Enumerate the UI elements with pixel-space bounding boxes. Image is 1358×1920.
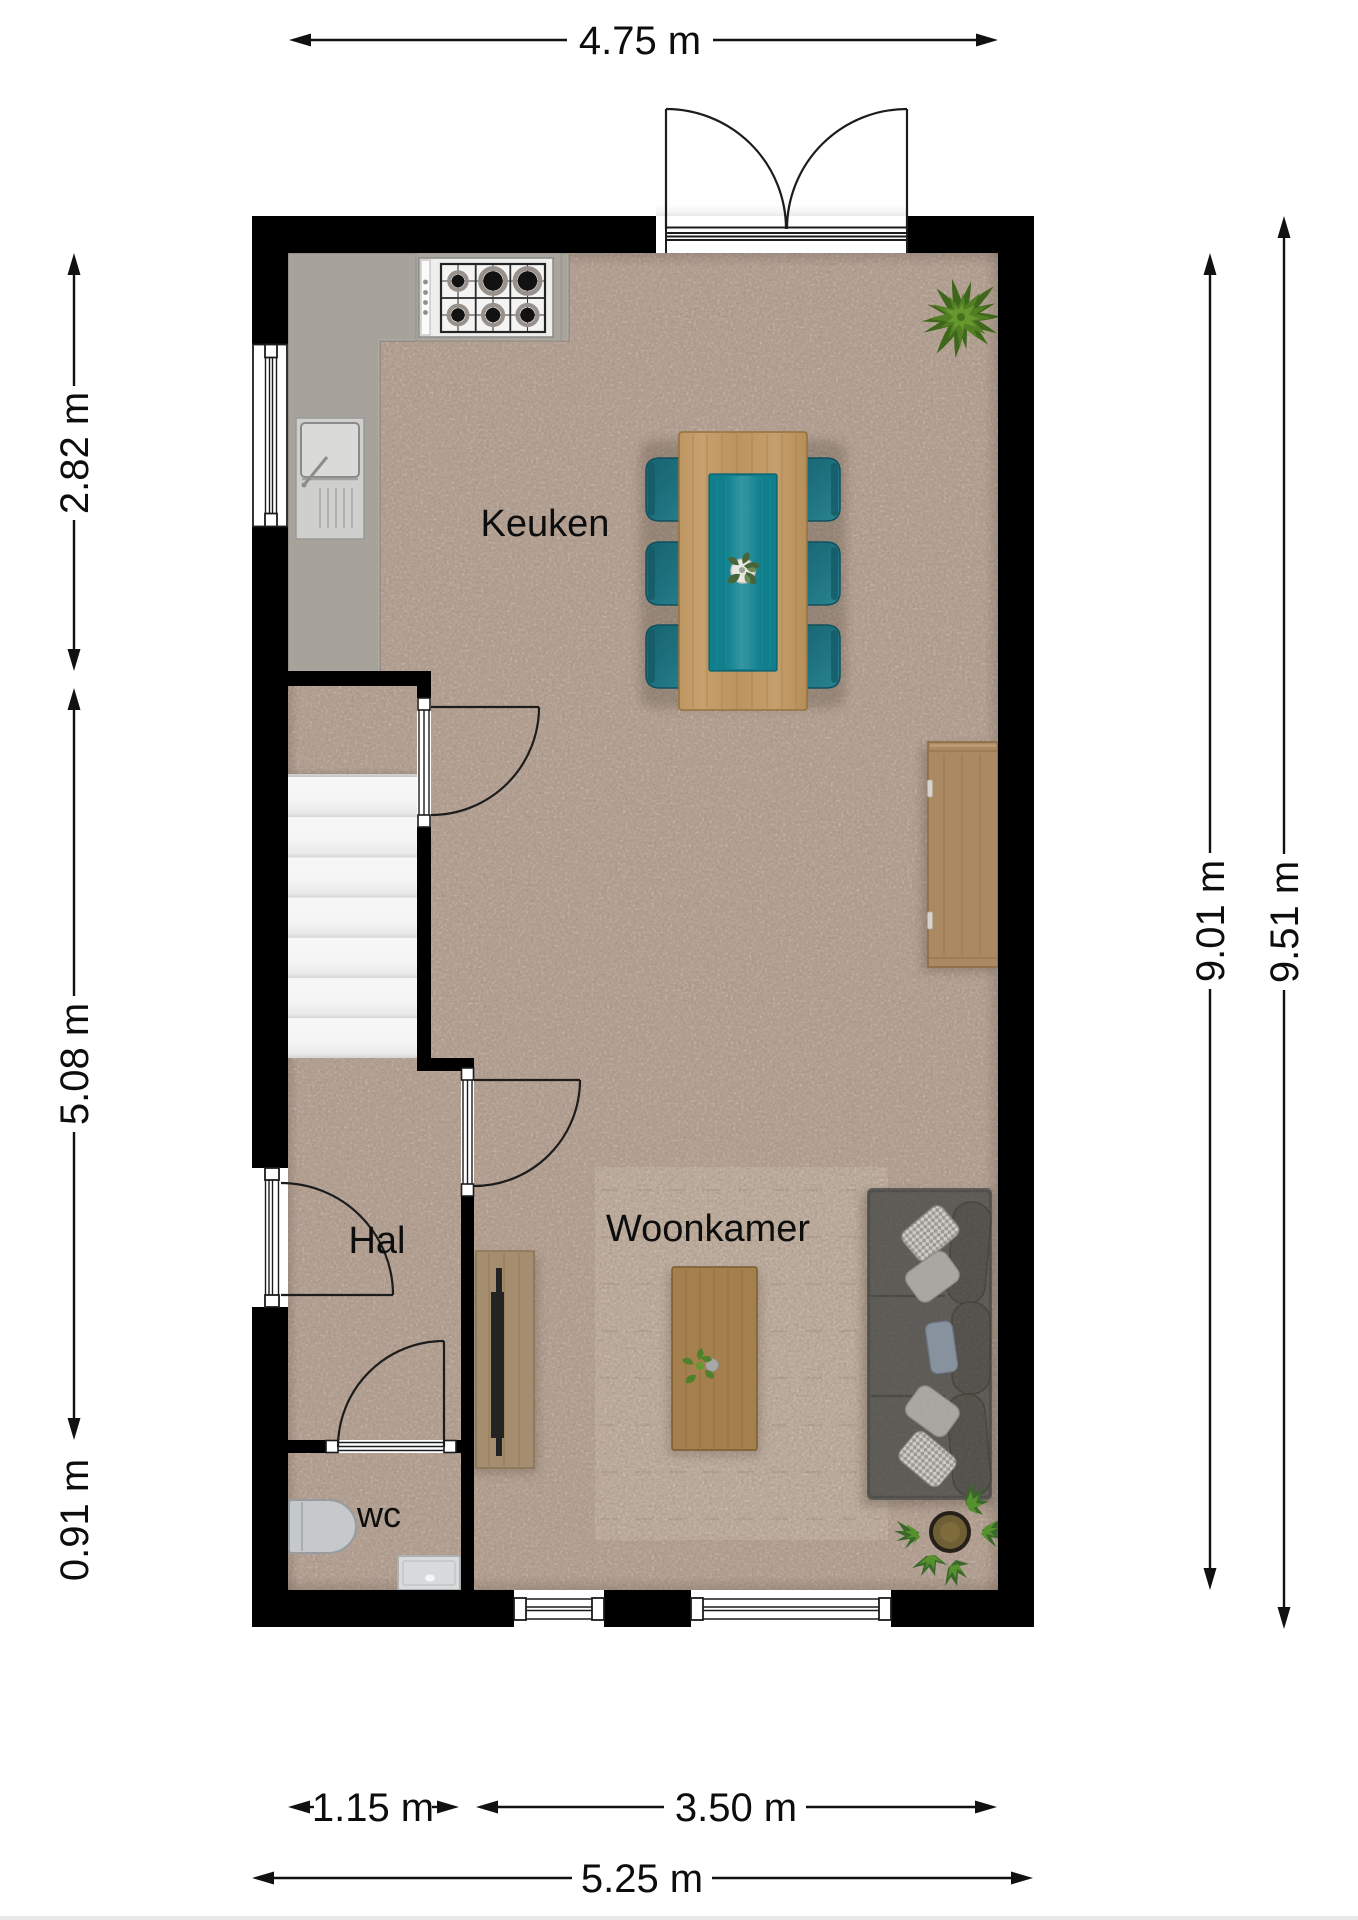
svg-text:Woonkamer: Woonkamer [606, 1208, 811, 1250]
svg-text:5.25 m: 5.25 m [581, 1857, 703, 1901]
svg-text:5.08 m: 5.08 m [53, 1003, 97, 1125]
svg-text:4.75 m: 4.75 m [579, 19, 701, 63]
svg-text:0.91 m: 0.91 m [53, 1459, 97, 1581]
svg-text:Hal: Hal [348, 1220, 405, 1262]
svg-text:9.51 m: 9.51 m [1263, 861, 1307, 983]
svg-text:9.01 m: 9.01 m [1189, 860, 1233, 982]
svg-text:2.82 m: 2.82 m [53, 392, 97, 514]
svg-text:wc: wc [356, 1494, 401, 1535]
svg-text:Keuken: Keuken [481, 503, 610, 545]
svg-text:3.50 m: 3.50 m [675, 1786, 797, 1830]
svg-text:1.15 m: 1.15 m [312, 1786, 434, 1830]
